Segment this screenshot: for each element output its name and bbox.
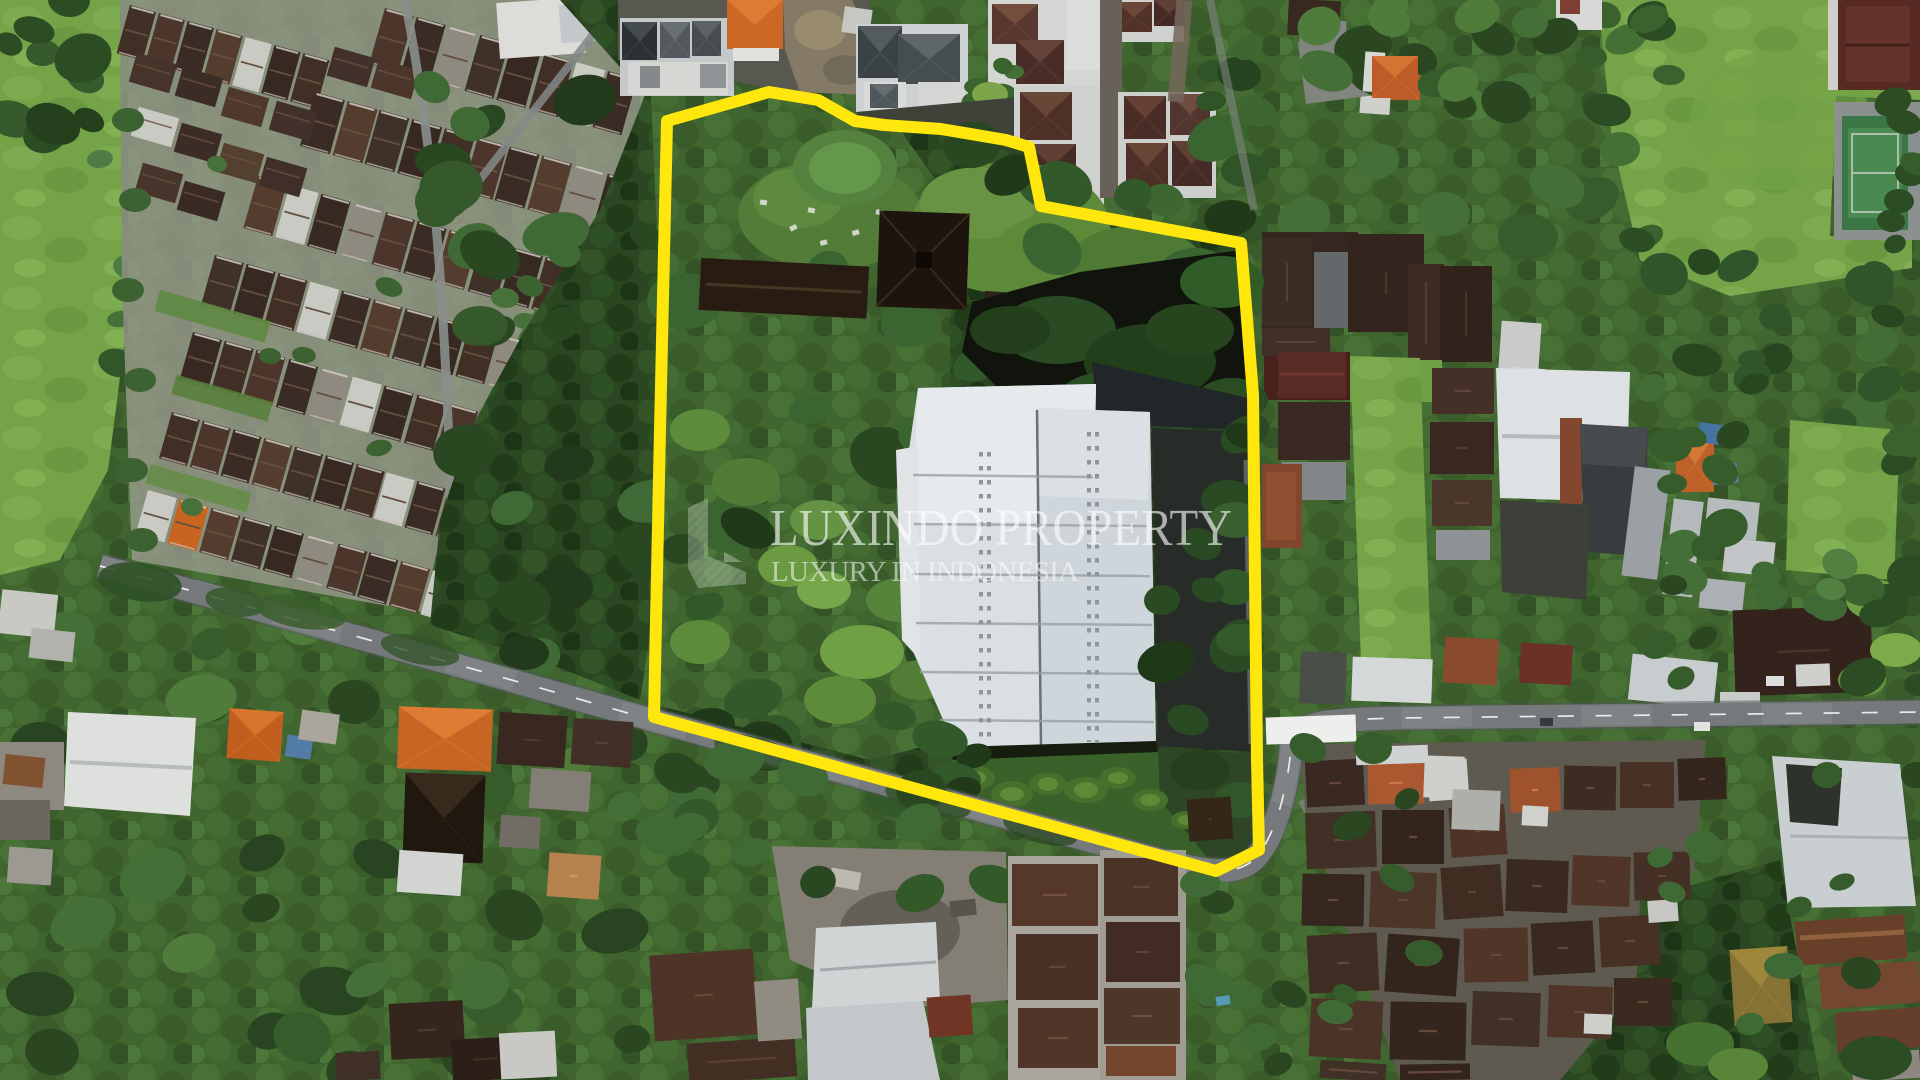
svg-text:LUXINDO PROPERTY: LUXINDO PROPERTY [770,500,1232,557]
svg-text:LUXURY IN INDONESIA: LUXURY IN INDONESIA [771,556,1085,588]
